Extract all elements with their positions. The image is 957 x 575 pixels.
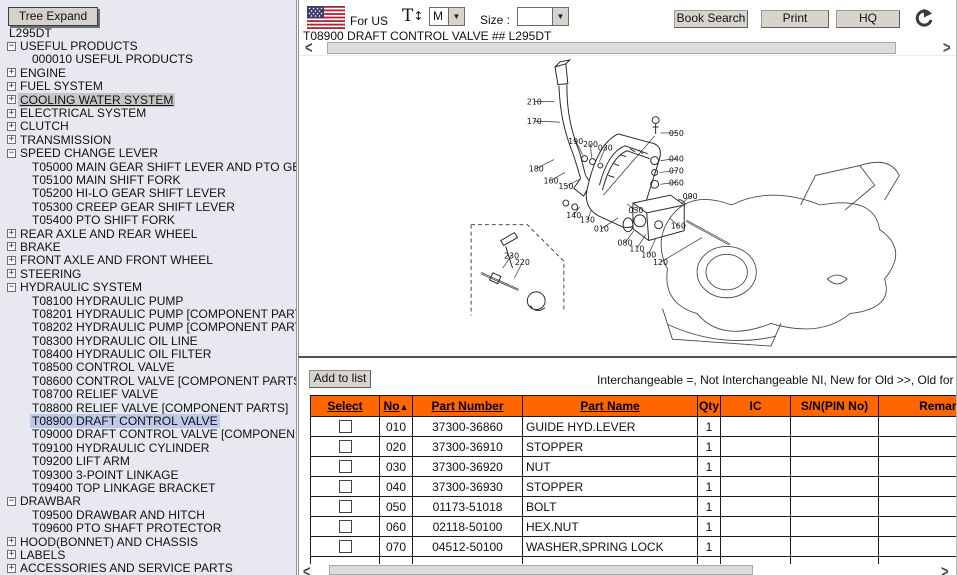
scroll-left-icon[interactable]: < [305,38,313,59]
diagram-part-label[interactable]: 170 [527,117,542,126]
diagram-part-label[interactable]: 120 [653,258,668,267]
table-row: 05001173-51018BOLT1 [311,497,957,517]
diagram-part-label[interactable]: 180 [529,164,544,173]
scroll-left-icon[interactable]: < [303,562,311,575]
tree-item-label: T08800 RELIEF VALVE [COMPONENT PARTS] [30,401,290,415]
scrollbar-thumb[interactable] [329,565,753,575]
hq-button[interactable]: HQ [836,10,900,28]
expand-plus-icon[interactable]: + [7,564,16,573]
tree-item-label: BRAKE [18,240,63,254]
tree-item[interactable]: T08201 HYDRAULIC PUMP [COMPONENT PART [0,307,297,320]
column-header-remarks: Remarks [879,396,957,417]
tree: L295DT−USEFUL PRODUCTS000010 USEFUL PROD… [0,26,297,575]
cell-remarks [879,537,957,557]
interchangeable-legend: Interchangeable =, Not Interchangeable N… [597,373,955,387]
table-row: 01037300-36860GUIDE HYD.LEVER1 [311,417,957,437]
cell-part-number: 37300-36930 [413,477,523,497]
column-header-part-number[interactable]: Part Number [413,396,523,417]
tree-item[interactable]: T08700 RELIEF VALVE [0,388,297,401]
tree-item-label: T05300 CREEP GEAR SHIFT LEVER [30,200,237,214]
tree-item-label: FRONT AXLE AND FRONT WHEEL [18,253,215,267]
tree-item[interactable]: T09000 DRAFT CONTROL VALVE [COMPONEN [0,428,297,441]
us-flag-icon [307,6,345,29]
tree-item[interactable]: T09100 HYDRAULIC CYLINDER [0,441,297,454]
cell-part-name: STOPPER [523,477,698,497]
tree-item[interactable]: T09400 TOP LINKAGE BRACKET [0,481,297,494]
column-header-ic: IC [721,396,791,417]
chevron-down-icon[interactable]: ▼ [448,8,464,25]
tree-item[interactable]: −USEFUL PRODUCTS [0,39,297,52]
tree-item-label: T08600 CONTROL VALVE [COMPONENT PARTS [30,374,297,388]
row-select-checkbox[interactable] [339,540,352,553]
cell-remarks [879,417,957,437]
tree-item-label: TRANSMISSION [18,133,113,147]
region-label: For US [350,14,388,28]
cell-part-number: 02118-50100 [413,517,523,537]
column-header-s-n-pin-no-: S/N(PIN No) [791,396,879,417]
expand-plus-icon[interactable]: + [7,135,16,144]
cell-qty: 1 [698,437,721,457]
tree-item[interactable]: T08600 CONTROL VALVE [COMPONENT PARTS [0,374,297,387]
table-row: 03037300-36920NUT1 [311,457,957,477]
expand-plus-icon[interactable]: + [7,82,16,91]
cell-ic [721,537,791,557]
cell-sn-pin [791,477,879,497]
column-header-no[interactable]: No▲ [380,396,413,417]
scrollbar-thumb[interactable] [327,42,896,54]
tree-item[interactable]: +FRONT AXLE AND FRONT WHEEL [0,254,297,267]
tree-item[interactable]: +BRAKE [0,240,297,253]
tree-item[interactable]: +FUEL SYSTEM [0,80,297,93]
tree-item[interactable]: T09600 PTO SHAFT PROTECTOR [0,521,297,534]
tree-item-label: T09200 LIFT ARM [30,454,132,468]
tree-item[interactable]: −SPEED CHANGE LEVER [0,147,297,160]
tree-item-label: T08100 HYDRAULIC PUMP [30,294,185,308]
diagram-part-label[interactable]: 130 [580,216,595,225]
tree-item[interactable]: +ENGINE [0,66,297,79]
expand-plus-icon[interactable]: + [7,537,16,546]
tree-item-label: FUEL SYSTEM [18,79,105,93]
collapse-minus-icon[interactable]: − [7,283,16,292]
tree-item[interactable]: +REAR AXLE AND REAR WHEEL [0,227,297,240]
diagram-panel: For US T↕ M ▼ Size : ▼ Book Search Print… [298,0,957,356]
tree-item[interactable]: +LABELS [0,548,297,561]
tree-item[interactable]: T08100 HYDRAULIC PUMP [0,294,297,307]
table-row: 06002118-50100HEX.NUT1 [311,517,957,537]
tree-item-label: T09500 DRAWBAR AND HITCH [30,508,207,522]
table-row: 02037300-36910STOPPER1 [311,437,957,457]
tree-item-label: T09100 HYDRAULIC CYLINDER [30,441,211,455]
tree-item-label: T05200 HI-LO GEAR SHIFT LEVER [30,186,228,200]
sort-ascending-icon: ▲ [400,402,409,412]
diagram-part-label[interactable]: 030 [628,206,643,215]
tree-item-label: REAR AXLE AND REAR WHEEL [18,227,199,241]
cell-no: 010 [380,417,413,437]
cell-part-name: BOLT [523,497,698,517]
tree-item-label: ACCESSORIES AND SERVICE PARTS [18,561,235,575]
tree-item-label: LABELS [18,548,67,562]
refresh-icon[interactable] [911,7,935,31]
tree-item[interactable]: +ACCESSORIES AND SERVICE PARTS [0,562,297,575]
tree-item[interactable]: +ELECTRICAL SYSTEM [0,106,297,119]
tree-item[interactable]: T08202 HYDRAULIC PUMP [COMPONENT PART [0,321,297,334]
parts-panel: Add to list Interchangeable =, Not Inter… [298,356,957,575]
tree-item-label: T08300 HYDRAULIC OIL LINE [30,334,200,348]
diagram-part-label[interactable]: 090 [683,192,698,201]
tree-item-label: T08400 HYDRAULIC OIL FILTER [30,347,213,361]
tree-item-label: L295DT [7,26,54,40]
cell-ic [721,417,791,437]
expand-plus-icon[interactable]: + [7,109,16,118]
cell-sn-pin [791,457,879,477]
cell-no: 030 [380,457,413,477]
expand-plus-icon[interactable]: + [7,229,16,238]
tree-item[interactable]: T08300 HYDRAULIC OIL LINE [0,334,297,347]
tree-item-label: T09300 3-POINT LINKAGE [30,468,181,482]
cell-no: 070 [380,537,413,557]
chevron-down-icon[interactable]: ▼ [552,8,568,25]
row-select-checkbox[interactable] [339,420,352,433]
parts-table-header-row: SelectNo▲Part NumberPart NameQtyICS/N(PI… [311,396,957,417]
tree-item-label: T05400 PTO SHIFT FORK [30,213,177,227]
tree-item[interactable]: T08500 CONTROL VALVE [0,361,297,374]
font-size-value: M [430,8,448,25]
tree-item[interactable]: T09200 LIFT ARM [0,455,297,468]
expand-plus-icon[interactable]: + [7,68,16,77]
cell-ic [721,497,791,517]
tree-item[interactable]: −DRAWBAR [0,495,297,508]
cell-no: 040 [380,477,413,497]
cell-part-name: STOPPER [523,437,698,457]
tree-item[interactable]: +STEERING [0,267,297,280]
column-header-part-name[interactable]: Part Name [523,396,698,417]
cell-remarks [879,457,957,477]
parts-diagram[interactable]: 2101701902000300500400700601801601500900… [303,57,953,353]
cell-part-number: 37300-36910 [413,437,523,457]
tree-item-label: CLUTCH [18,119,71,133]
tree-item-label: DRAWBAR [18,494,83,508]
scroll-right-icon[interactable]: > [941,562,949,575]
size-value [518,8,552,25]
cell-no: 060 [380,517,413,537]
cell-ic [721,477,791,497]
tree-item[interactable]: T09300 3-POINT LINKAGE [0,468,297,481]
diagram-part-label[interactable]: 200 [583,140,598,149]
cell-sn-pin [791,497,879,517]
tree-item[interactable]: 000010 USEFUL PRODUCTS [0,53,297,66]
tree-item[interactable]: +TRANSMISSION [0,133,297,146]
book-search-button[interactable]: Book Search [674,10,748,28]
tree-item[interactable]: T05200 HI-LO GEAR SHIFT LEVER [0,187,297,200]
font-size-dropdown[interactable]: M ▼ [429,7,465,26]
tree-item[interactable]: T05300 CREEP GEAR SHIFT LEVER [0,200,297,213]
cell-qty: 1 [698,477,721,497]
tree-item-label: T08500 CONTROL VALVE [30,360,177,374]
collapse-minus-icon[interactable]: − [7,497,16,506]
tree-item-label: SPEED CHANGE LEVER [18,146,160,160]
tree-item[interactable]: T08900 DRAFT CONTROL VALVE [0,414,297,427]
cell-no: 020 [380,437,413,457]
diagram-part-label[interactable]: 030 [598,144,613,153]
table-row: 07004512-50100WASHER,SPRING LOCK1 [311,537,957,557]
parts-table: SelectNo▲Part NumberPart NameQtyICS/N(PI… [310,395,957,575]
cell-part-name: NUT [523,457,698,477]
row-select-checkbox[interactable] [339,460,352,473]
tree-item-label: T08900 DRAFT CONTROL VALVE [30,414,220,428]
add-to-list-button[interactable]: Add to list [309,370,371,388]
diagram-part-label[interactable]: 150 [558,182,573,191]
tree-item[interactable]: T09500 DRAWBAR AND HITCH [0,508,297,521]
cell-remarks [879,477,957,497]
cell-sn-pin [791,537,879,557]
row-select-checkbox[interactable] [339,500,352,513]
cell-no: 050 [380,497,413,517]
tree-item-label: 000010 USEFUL PRODUCTS [30,52,195,66]
diagram-part-label[interactable]: 220 [515,258,530,267]
diagram-part-label[interactable]: 210 [527,97,542,106]
tree-item-label: HYDRAULIC SYSTEM [18,280,144,294]
tree-panel: Tree Expand L295DT−USEFUL PRODUCTS000010… [0,0,297,575]
row-select-checkbox[interactable] [339,520,352,533]
tree-item-label: ELECTRICAL SYSTEM [18,106,148,120]
tree-item-label: T08201 HYDRAULIC PUMP [COMPONENT PART [30,307,297,321]
diagram-part-label[interactable]: 010 [594,225,609,234]
cell-ic [721,517,791,537]
diagram-part-label[interactable]: 190 [568,137,583,146]
tree-item[interactable]: T08800 RELIEF VALVE [COMPONENT PARTS] [0,401,297,414]
cell-part-number: 04512-50100 [413,537,523,557]
expand-plus-icon[interactable]: + [7,242,16,251]
diagram-part-label[interactable]: 160 [671,222,686,231]
tree-item-label: T09400 TOP LINKAGE BRACKET [30,481,217,495]
diagram-part-label[interactable]: 160 [544,176,559,185]
diagram-part-label[interactable]: 140 [566,211,581,220]
tree-item-label: T05000 MAIN GEAR SHIFT LEVER AND PTO GE [30,160,297,174]
cell-part-number: 01173-51018 [413,497,523,517]
tree-item-label: ENGINE [18,66,68,80]
tree-item-label: T09600 PTO SHAFT PROTECTOR [30,521,223,535]
tree-item-label: USEFUL PRODUCTS [18,39,140,53]
tree-item-label: T08202 HYDRAULIC PUMP [COMPONENT PART [30,320,297,334]
expand-plus-icon[interactable]: + [7,269,16,278]
tree-item[interactable]: T08400 HYDRAULIC OIL FILTER [0,347,297,360]
tree-item-label: COOLING WATER SYSTEM [18,93,175,107]
tree-expand-button[interactable]: Tree Expand [8,7,98,26]
cell-part-number: 37300-36860 [413,417,523,437]
diagram-part-label[interactable]: 070 [669,166,684,175]
expand-plus-icon[interactable]: + [7,122,16,131]
tree-item-label: T09000 DRAFT CONTROL VALVE [COMPONEN [30,427,297,441]
tree-item[interactable]: −HYDRAULIC SYSTEM [0,280,297,293]
row-select-checkbox[interactable] [339,480,352,493]
cell-part-name: GUIDE HYD.LEVER [523,417,698,437]
scroll-right-icon[interactable]: > [943,38,951,59]
cell-part-name: WASHER,SPRING LOCK [523,537,698,557]
text-size-icon: T↕ [402,6,423,26]
cell-qty: 1 [698,417,721,437]
cell-sn-pin [791,437,879,457]
cell-ic [721,457,791,477]
cell-part-number: 37300-36920 [413,457,523,477]
diagram-part-label[interactable]: 040 [669,155,684,164]
tree-item-label: HOOD(BONNET) AND CHASSIS [18,535,200,549]
tree-item[interactable]: T05400 PTO SHIFT FORK [0,213,297,226]
cell-remarks [879,437,957,457]
tree-item[interactable]: T05100 MAIN SHIFT FORK [0,173,297,186]
tree-item[interactable]: +COOLING WATER SYSTEM [0,93,297,106]
cell-remarks [879,517,957,537]
cell-part-name: HEX.NUT [523,517,698,537]
diagram-part-label[interactable]: 060 [669,178,684,187]
cell-qty: 1 [698,497,721,517]
diagram-part-label[interactable]: 050 [669,129,684,138]
column-header-qty: Qty [698,396,721,417]
tree-item-label: STEERING [18,267,83,281]
cell-ic [721,437,791,457]
size-label: Size : [480,13,510,27]
size-dropdown[interactable]: ▼ [517,7,569,26]
expand-plus-icon[interactable]: + [7,256,16,265]
cell-sn-pin [791,417,879,437]
table-row: 04037300-36930STOPPER1 [311,477,957,497]
table-horizontal-scrollbar[interactable]: < > [299,564,956,575]
expand-plus-icon[interactable]: + [7,550,16,559]
cell-qty: 1 [698,537,721,557]
print-button[interactable]: Print [761,10,829,28]
cell-remarks [879,497,957,517]
diagram-horizontal-scrollbar[interactable]: < > [299,40,956,56]
tree-item[interactable]: L295DT [0,26,297,39]
cell-qty: 1 [698,457,721,477]
tree-item[interactable]: +CLUTCH [0,120,297,133]
expand-plus-icon[interactable]: + [7,95,16,104]
tree-item[interactable]: T05000 MAIN GEAR SHIFT LEVER AND PTO GE [0,160,297,173]
column-header-select[interactable]: Select [311,396,380,417]
cell-sn-pin [791,517,879,537]
tree-item[interactable]: +HOOD(BONNET) AND CHASSIS [0,535,297,548]
tree-item-label: T08700 RELIEF VALVE [30,387,160,401]
cell-qty: 1 [698,517,721,537]
row-select-checkbox[interactable] [339,440,352,453]
collapse-minus-icon[interactable]: − [7,42,16,51]
tree-item-label: T05100 MAIN SHIFT FORK [30,173,182,187]
collapse-minus-icon[interactable]: − [7,149,16,158]
